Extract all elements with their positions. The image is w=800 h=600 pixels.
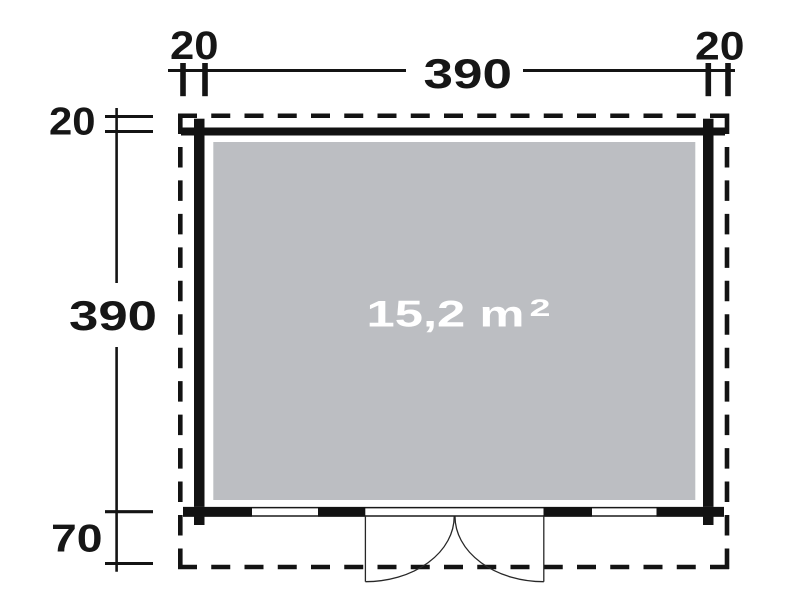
svg-text:15,2 m: 15,2 m: [367, 292, 525, 334]
svg-text:390: 390: [69, 292, 157, 339]
svg-text:2: 2: [530, 295, 551, 322]
svg-text:20: 20: [49, 101, 96, 144]
svg-text:20: 20: [695, 25, 745, 69]
svg-text:20: 20: [170, 24, 219, 68]
svg-text:70: 70: [51, 518, 103, 561]
svg-text:390: 390: [424, 50, 513, 97]
